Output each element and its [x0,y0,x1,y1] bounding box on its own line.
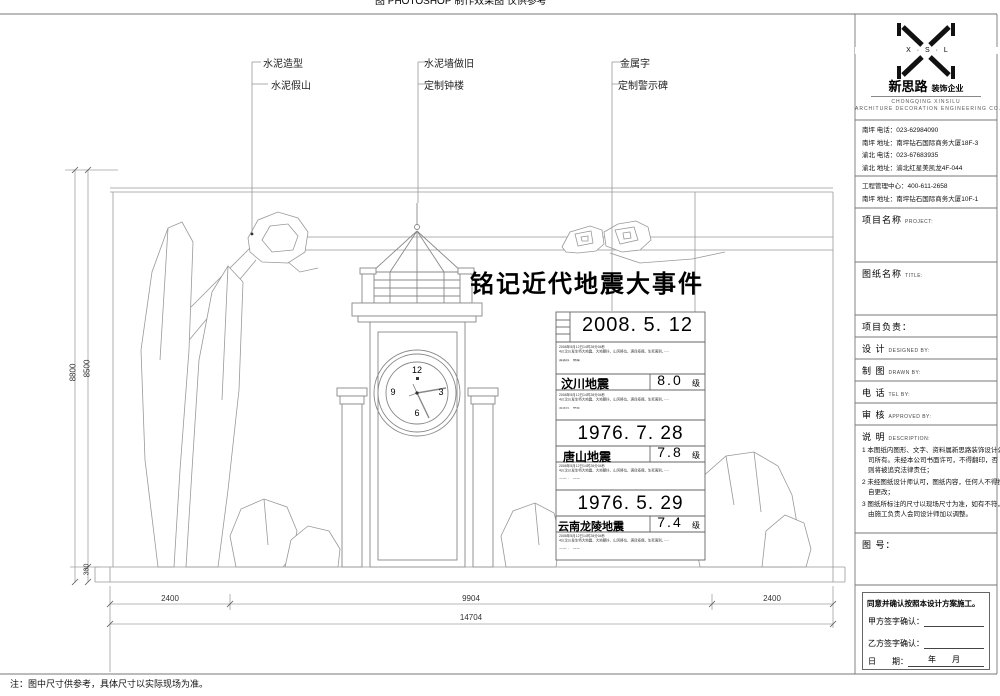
company-name-en1: CHONGQING XINSILU [855,99,997,105]
wall-main-title: 铭记近代地震大事件 [466,264,708,299]
linework-canvas [0,0,1000,696]
tel-label-en: TEL BY: [889,392,911,398]
company-name: 新思路 装饰企业 [855,76,997,95]
description-label: 说 明 [862,430,886,443]
logo-monogram: X · S · L [855,47,1000,54]
designed-by-field: 设 计 DESIGNED BY: [855,342,1000,355]
signoff-statement: 同意并确认按照本设计方案施工。 [867,598,980,609]
contact-line: 渝北 地址：渝北红星美凯龙4F-044 [855,163,997,176]
project-name-field: 项目名称 PROJECT: [855,213,1000,226]
party-a-sign-row: 甲方签字确认： [863,613,989,627]
quake-magnitude-1: 8.0 [652,372,688,388]
dim-bottom-left: 2400 [140,594,200,603]
callout-cement-shape: 水泥造型 [263,55,303,70]
quake-note-2: 2008年5月12日14时28分04秒 4川汶川发生特大地震、大地颤抖、山河移位… [559,393,707,409]
drawn-by-label-en: DRAWN BY: [889,370,921,376]
contact-line: 工程管理中心：400-611-2658 [855,181,997,194]
clock-number-3: 3 [434,387,448,397]
wall-lines [110,188,833,567]
dim-left-inner: 8500 [83,354,92,384]
sheet-title-field: 图纸名称 TITLE: [855,267,1000,280]
title-block: X · S · L 新思路 装饰企业 CHONGQING XINSILU ARC… [855,14,997,674]
contact-group-2: 工程管理中心：400-611-2658 南坪 地址：南坪钻石国际商务大厦10F-… [855,181,997,206]
quake-name-1: 汶川地震 [561,375,609,392]
drawing-sheet: 图 PHOTOSHOP 制作效果图 仅供参考 水泥造型 水泥假山 水泥墙做旧 定… [0,0,1000,696]
clock-number-6: 6 [410,408,424,418]
base-platform [95,567,845,582]
sheet-frame [0,14,997,674]
date-sign-row: 日 期： 年 月 [863,653,989,667]
quake-date-3: 1976. 5. 29 [556,493,705,515]
quake-note-1: 2008年5月12日14时28分04秒 4川汶川发生特大地震、大地颤抖、山河移位… [559,345,707,361]
company-name-tag: 装饰企业 [932,83,964,94]
tel-field: 电 话 TEL BY: [855,386,1000,399]
project-leader-field: 项目负责： [862,320,912,333]
dim-bottom-total: 14704 [441,613,501,622]
quake-unit-3: 级 [692,520,700,531]
project-label: 项目名称 [862,213,902,226]
party-b-sign-row: 乙方签字确认： [863,635,989,649]
party-b-signature-line [924,636,984,649]
party-b-label: 乙方签字确认： [868,638,924,649]
callout-custom-clock-tower: 定制钟楼 [424,77,464,92]
quake-note-4: 2008年5月12日14时28分04秒 4川汶川发生特大地震、大地颤抖、山河移位… [559,534,707,549]
dim-left-bottom: 300 [84,555,91,585]
contact-line: 南坪 电话：023-62984090 [855,125,997,138]
designed-by-label-en: DESIGNED BY: [889,348,930,354]
sheet-footnote: 注：图中尺寸供参考，具体尺寸以实际现场为准。 [10,677,208,690]
company-name-cn: 新思路 [888,76,927,95]
party-a-signature-line [924,614,984,627]
quake-date-1: 2008. 5. 12 [570,314,705,337]
quake-date-2: 1976. 7. 28 [556,423,705,445]
approved-by-field: 审 核 APPROVED BY: [855,408,1000,421]
description-notes: 1 本图纸内图形、文字、资料属新思路装饰设计公司所有。未经本公司书面许可，不得翻… [855,446,1000,522]
callout-metal-letters: 金属字 [620,55,650,70]
signoff-date-line: 年 月 [908,654,984,667]
signoff-date-label: 日 期： [868,656,908,667]
approved-by-label: 审 核 [862,408,886,421]
quake-note-3: 2008年5月12日14时28分04秒 4川汶川发生特大地震、大地颤抖、山河移位… [559,464,707,479]
clock-number-12: 12 [410,365,424,375]
sheet-title-label: 图纸名称 [862,267,902,280]
quake-name-3: 云南龙陵地震 [558,518,624,534]
quake-unit-1: 级 [692,378,700,389]
approved-by-label-en: APPROVED BY: [889,414,932,420]
quake-unit-2: 级 [692,450,700,461]
quake-magnitude-3: 7.4 [652,514,688,530]
description-label-en: DESCRIPTION: [889,436,931,442]
drawn-by-field: 制 图 DRAWN BY: [855,364,1000,377]
sheet-title-label-en: TITLE: [905,273,923,279]
sheet-number-field: 图 号： [862,538,896,551]
party-a-label: 甲方签字确认： [868,616,924,627]
logo-rule [871,96,981,97]
description-note-1: 1 本图纸内图形、文字、资料属新思路装饰设计公司所有。未经本公司书面许可，不得翻… [862,446,1000,476]
callout-custom-warning-monument: 定制警示碑 [618,77,668,92]
contact-line: 渝北 电话：023-67683935 [855,150,997,163]
contact-line: 南坪 地址：南坪钻石国际商务大厦10F-1 [855,194,997,207]
tel-label: 电 话 [862,386,886,399]
dim-left-outer: 8800 [69,358,78,388]
dim-bottom-right: 2400 [742,594,802,603]
clock-tower [337,203,498,567]
quake-magnitude-2: 7.8 [652,444,688,460]
description-note-2: 2 未经图纸设计师认可，图纸内容，任何人不得擅自更改； [862,478,1000,498]
callout-aged-cement-wall: 水泥墙做旧 [424,55,474,70]
description-note-3: 3 图纸所标注的尺寸以现场尺寸为准，如有不符，由施工负责人会同设计师加以调整。 [862,500,1000,520]
signoff-box: 同意并确认按照本设计方案施工。 甲方签字确认： 乙方签字确认： 日 期： 年 月 [862,592,990,670]
dim-bottom-mid: 9904 [441,594,501,603]
clock-number-9: 9 [386,387,400,397]
company-name-en2: ARCHITURE DECORATION ENGINEERING CO. [855,106,997,112]
designed-by-label: 设 计 [862,342,886,355]
quake-name-2: 唐山地震 [563,448,611,465]
project-label-en: PROJECT: [905,219,933,225]
top-clipped-caption: 图 PHOTOSHOP 制作效果图 仅供参考 [375,0,547,7]
contact-line: 南坪 地址：南坪钻石国际商务大厦18F-3 [855,138,997,151]
contact-group-1: 南坪 电话：023-62984090 南坪 地址：南坪钻石国际商务大厦18F-3… [855,125,997,175]
drawn-by-label: 制 图 [862,364,886,377]
callout-cement-rockery: 水泥假山 [271,77,311,92]
description-field: 说 明 DESCRIPTION: [855,430,1000,443]
